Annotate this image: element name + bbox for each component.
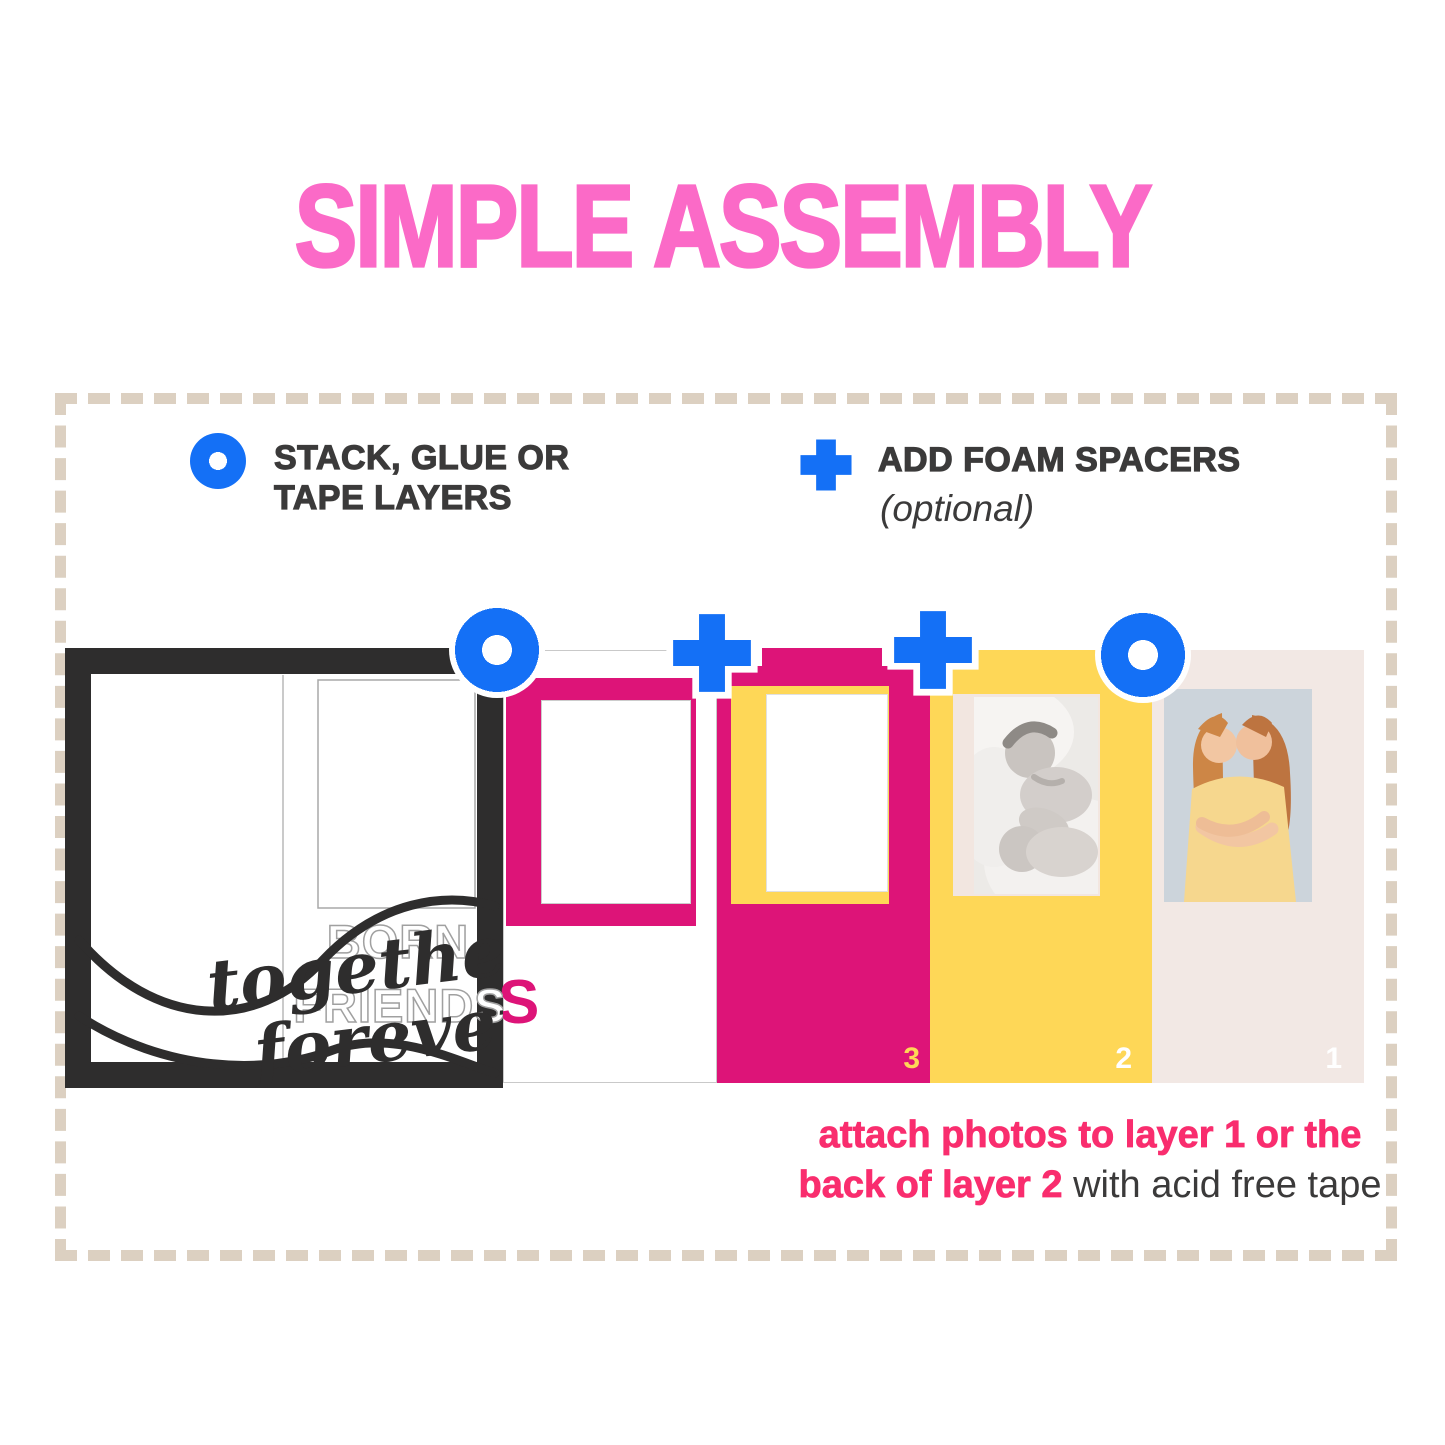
page-title: SIMPLE ASSEMBLY	[72, 161, 1373, 294]
foam-label: ADD FOAM SPACERS	[878, 440, 1298, 480]
pink-layer-photo-window-opening	[766, 694, 888, 892]
caption: attach photos to layer 1 or the back of …	[790, 1110, 1390, 1210]
stack-ring-icon-2	[1095, 607, 1191, 703]
foam-sublabel: (optional)	[880, 488, 1034, 530]
white-layer-photo-window-opening	[541, 700, 691, 904]
caption-line2-bold: back of layer 2	[798, 1164, 1062, 1206]
foam-plus-icon-1	[664, 605, 760, 701]
layer-frame-panel	[65, 648, 503, 1088]
caption-line1: attach photos to layer 1 or the	[790, 1110, 1390, 1160]
caption-line2: back of layer 2 with acid free tape	[790, 1160, 1390, 1210]
stack-label: STACK, GLUE OR TAPE LAYERS	[274, 438, 614, 518]
layer-number-1: 1	[1298, 1044, 1342, 1074]
foam-plus-icon-2	[885, 602, 981, 698]
foam-plus-icon	[797, 436, 855, 494]
layer-number-2: 2	[1088, 1044, 1132, 1074]
photo-girls-hugging	[1164, 689, 1312, 902]
hidden-letter: S	[498, 972, 539, 1034]
stack-label-line1: STACK, GLUE OR	[274, 438, 614, 478]
stack-label-line2: TAPE LAYERS	[274, 478, 614, 518]
layer-number-3: 3	[876, 1044, 920, 1074]
photo-newborn-twins	[974, 697, 1098, 894]
caption-line2-rest: with acid free tape	[1063, 1164, 1382, 1206]
stack-ring-icon	[190, 433, 246, 489]
assembly-instructions-page: SIMPLE ASSEMBLY STACK, GLUE OR TAPE LAYE…	[0, 0, 1445, 1445]
stack-ring-icon-1	[449, 602, 545, 698]
